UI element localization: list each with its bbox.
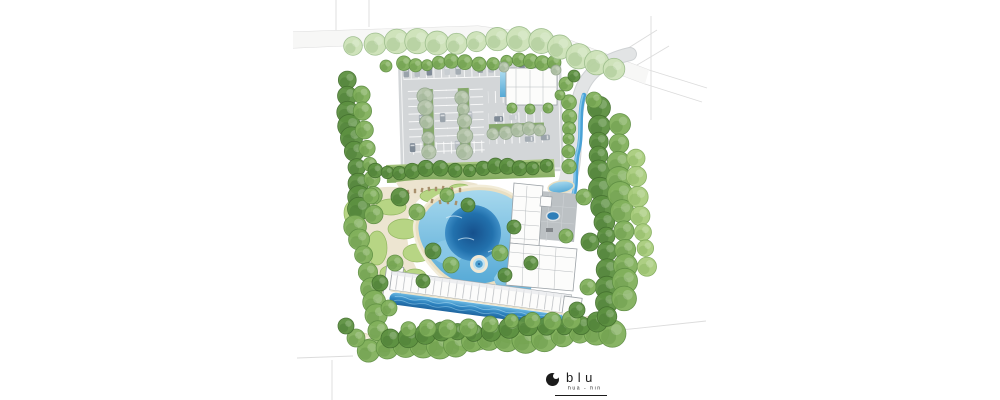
tree [422, 145, 436, 159]
tree [438, 320, 456, 338]
tree [459, 319, 477, 337]
tree [524, 256, 538, 270]
tree [422, 60, 433, 71]
tree [397, 56, 412, 71]
tree [525, 312, 541, 328]
tree [569, 302, 585, 318]
tree [526, 162, 539, 175]
tree [512, 161, 527, 176]
tree [353, 102, 371, 120]
logo-crescent-notch [553, 373, 559, 379]
tree [432, 56, 445, 69]
tree [563, 133, 574, 144]
site-plan-canvas: blu hua - hin [0, 0, 1000, 400]
tree [614, 221, 634, 241]
tree [372, 275, 388, 291]
tree [540, 159, 553, 172]
tree [381, 166, 394, 179]
tree [457, 128, 473, 144]
tree [597, 307, 617, 327]
court-fountain [547, 212, 560, 221]
tree [499, 62, 509, 72]
tree [507, 220, 521, 234]
tree [637, 257, 656, 276]
tree [418, 100, 433, 115]
tree [359, 140, 375, 156]
car [509, 115, 518, 121]
entrance-pavilion [500, 68, 557, 105]
tree [555, 90, 565, 100]
project-logo: blu hua - hin [546, 371, 626, 396]
tree [487, 128, 499, 140]
tree [627, 149, 645, 167]
tree [416, 274, 430, 288]
tree [551, 65, 561, 75]
tree [448, 163, 462, 177]
tree [368, 163, 383, 178]
lounger [459, 188, 461, 192]
jacuzzi-island [470, 255, 488, 273]
tree [603, 58, 625, 80]
lounger [414, 189, 416, 193]
tree [634, 224, 651, 241]
tree [457, 55, 472, 70]
brand-location: hua - hin [568, 386, 602, 391]
tree [381, 300, 397, 316]
tree [443, 257, 459, 273]
tree [409, 59, 422, 72]
tree [457, 103, 469, 115]
tree [498, 268, 512, 282]
tree [609, 113, 630, 134]
tree [433, 161, 449, 177]
car [440, 113, 446, 122]
tree [612, 286, 637, 311]
tree [543, 103, 553, 113]
lounger [435, 187, 437, 191]
tree [419, 320, 436, 337]
tree [401, 322, 416, 337]
tree [499, 126, 512, 139]
tree [463, 165, 475, 177]
tree [562, 145, 575, 158]
tree [466, 32, 486, 52]
tree [387, 255, 403, 271]
tree [492, 245, 508, 261]
tree [637, 240, 654, 257]
tree [581, 233, 599, 251]
tree [418, 160, 434, 176]
car [525, 136, 534, 142]
tree [380, 60, 392, 72]
tree [422, 132, 434, 144]
tree [568, 70, 580, 82]
brand-name: blu [566, 371, 608, 384]
tree [486, 27, 509, 50]
tree [381, 329, 400, 348]
tree [404, 163, 419, 178]
tree [586, 92, 602, 108]
tree [444, 54, 459, 69]
tree [355, 246, 373, 264]
tree [562, 159, 576, 173]
tree [391, 188, 409, 206]
site-plan-rendering [0, 0, 1000, 400]
tree [559, 229, 573, 243]
tree [544, 312, 562, 330]
tree [482, 316, 498, 332]
tree [338, 318, 354, 334]
tree [393, 166, 407, 180]
tree [446, 33, 467, 54]
tree [609, 134, 629, 154]
tree [364, 33, 386, 55]
tree [455, 91, 469, 105]
tree [580, 279, 596, 295]
tree [461, 198, 475, 212]
tree [355, 121, 373, 139]
tree [505, 314, 519, 328]
tree [628, 186, 649, 207]
tree [534, 124, 546, 136]
tree [365, 205, 383, 223]
tree [576, 189, 592, 205]
car [494, 116, 503, 122]
tree [425, 243, 441, 259]
tree [507, 27, 532, 52]
tree [507, 103, 517, 113]
tree [420, 115, 434, 129]
tree [425, 31, 449, 55]
tree [487, 58, 499, 70]
tree [457, 114, 471, 128]
tree [626, 166, 646, 186]
tree [525, 104, 535, 114]
blu-logo-mark-icon [546, 373, 559, 386]
tree [409, 204, 425, 220]
tree [353, 86, 370, 103]
tree [440, 188, 454, 202]
logo-underline [555, 395, 607, 396]
car [410, 143, 416, 152]
tree [344, 37, 363, 56]
tree [472, 57, 486, 71]
tree [363, 188, 379, 204]
tree [630, 206, 650, 226]
tree [456, 144, 472, 160]
